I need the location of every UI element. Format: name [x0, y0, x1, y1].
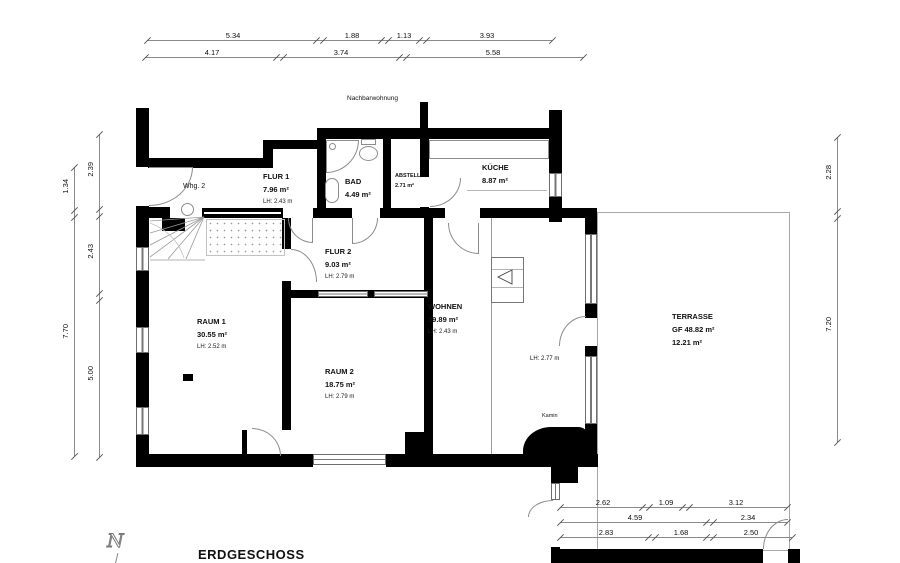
dim-label: 2.34	[741, 513, 756, 522]
dim-label: 1.09	[659, 498, 674, 507]
dim-label: 1.13	[397, 31, 412, 40]
wall	[585, 208, 597, 234]
door-arc-lower-left	[528, 500, 553, 517]
dim-label: 3.74	[334, 48, 349, 57]
toilet-bowl	[359, 146, 378, 161]
room-area: 7.96 m²	[263, 183, 292, 196]
wall	[480, 208, 597, 218]
dim-label: 1.34	[61, 179, 70, 194]
toilet-tank	[361, 139, 376, 145]
room-height-wohnen2: LH: 2.77 m	[530, 356, 559, 362]
room-name: BAD	[345, 175, 371, 188]
room-height: LH: 2.43 m	[428, 326, 462, 339]
wall	[551, 547, 560, 563]
wall	[585, 346, 597, 356]
room-label-raum2: RAUM 2 18.75 m² LH: 2.79 m	[325, 365, 355, 404]
door-arc-terrasse	[559, 316, 586, 346]
wall	[282, 281, 291, 430]
room-area: 12.21 m²	[672, 336, 715, 349]
room-height: LH: 2.52 m	[197, 341, 227, 354]
room-area: 18.75 m²	[325, 378, 355, 391]
window	[585, 234, 597, 304]
room-name: FLUR 2	[325, 245, 354, 258]
glazed-partition	[318, 291, 368, 297]
wall	[585, 304, 597, 318]
room-height: LH: 2.43 m	[263, 196, 292, 209]
room-label-wohnen: WOHNEN 39.89 m² LH: 2.43 m	[428, 300, 462, 339]
door-bell-symbol	[181, 203, 194, 216]
kitchen-counter	[429, 140, 549, 159]
room-area: 30.55 m²	[197, 328, 227, 341]
sink	[325, 178, 339, 203]
glazed-partition	[374, 291, 428, 297]
neighbor-label: Nachbarwohnung	[347, 95, 398, 102]
wall	[313, 208, 352, 218]
wall	[317, 128, 549, 139]
room-label-abstell: ABSTELL 2.71 m²	[395, 171, 420, 191]
room-area-gf: GF 48.82 m²	[672, 323, 715, 336]
compass-north-icon: N	[107, 530, 124, 552]
railing-slit	[204, 212, 281, 214]
door-arc-kueche	[430, 178, 461, 207]
dim-line-right	[837, 137, 838, 442]
dim-line-top-2	[145, 57, 583, 58]
door-arc-bad	[352, 218, 378, 244]
wall	[383, 139, 391, 217]
wall	[380, 208, 445, 218]
flue-arrow-icon	[491, 257, 524, 303]
room-area: 39.89 m²	[428, 313, 462, 326]
wall	[549, 110, 562, 173]
wall	[317, 139, 326, 217]
window	[136, 407, 149, 435]
room-height: LH: 2.79 m	[325, 391, 355, 404]
page-title: ERDGESCHOSS	[198, 547, 305, 562]
dim-label: 7.70	[61, 324, 70, 339]
wall	[788, 549, 800, 563]
dim-label: 5.34	[226, 31, 241, 40]
wall	[136, 454, 313, 467]
dim-label: 2.83	[599, 528, 614, 537]
room-name: FLUR 1	[263, 170, 292, 183]
wall	[551, 467, 578, 483]
column-mark	[183, 374, 193, 381]
room-label-flur1: FLUR 1 7.96 m² LH: 2.43 m	[263, 170, 292, 209]
room-area: 2.71 m²	[395, 181, 420, 191]
kamin-label: Kamin	[542, 413, 558, 419]
room-label-flur2: FLUR 2 9.03 m² LH: 2.79 m	[325, 245, 354, 284]
dim-line-bottom-2	[560, 522, 787, 523]
room-label-kueche: KÜCHE 8.87 m²	[482, 161, 509, 187]
window	[585, 356, 597, 424]
dim-label: 3.93	[480, 31, 495, 40]
wall	[263, 140, 322, 149]
dim-label: 1.88	[345, 31, 360, 40]
room-label-raum1: RAUM 1 30.55 m² LH: 2.52 m	[197, 315, 227, 354]
dim-label: 2.43	[86, 244, 95, 259]
dim-label: 2.62	[596, 498, 611, 507]
dim-label: 5.00	[86, 366, 95, 381]
dim-line-top-1	[147, 40, 552, 41]
window	[551, 483, 560, 500]
wall	[242, 430, 247, 454]
dim-label: 7.20	[824, 317, 833, 332]
wall	[420, 102, 428, 128]
room-label-bad: BAD 4.49 m²	[345, 175, 371, 201]
dim-label: 5.58	[486, 48, 501, 57]
room-label-whg2: Whg. 2	[183, 183, 205, 190]
door-arc-raum1-raum2	[252, 428, 281, 456]
fireplace-kamin	[523, 427, 588, 454]
room-area: 4.49 m²	[345, 188, 371, 201]
dim-label: 2.28	[824, 165, 833, 180]
dim-label: 4.59	[628, 513, 643, 522]
room-label-terrasse: TERRASSE GF 48.82 m² 12.21 m²	[672, 310, 715, 349]
dim-label: 2.39	[86, 162, 95, 177]
wall	[405, 432, 424, 454]
compass-needle	[115, 553, 119, 563]
dim-label: 2.50	[744, 528, 759, 537]
dim-label: 1.68	[674, 528, 689, 537]
room-name: WOHNEN	[428, 300, 462, 313]
wall	[420, 139, 429, 177]
room-name: KÜCHE	[482, 161, 509, 174]
room-name: RAUM 1	[197, 315, 227, 328]
room-name: RAUM 2	[325, 365, 355, 378]
void-dotted-area	[206, 219, 285, 256]
kitchen-counter-edge	[467, 190, 547, 191]
window	[549, 173, 562, 197]
dim-line-bottom-3	[560, 537, 792, 538]
wall	[386, 454, 598, 467]
staircase	[148, 213, 207, 261]
room-name: ABSTELL	[395, 171, 420, 181]
door-arc-flur1-flur2	[288, 218, 313, 243]
shower-drain	[329, 143, 336, 150]
dim-line-bottom-1	[560, 507, 787, 508]
wall	[136, 353, 149, 407]
room-area: 8.87 m²	[482, 174, 509, 187]
room-name: TERRASSE	[672, 310, 715, 323]
dim-line-left-inner	[99, 134, 100, 457]
room-height: LH: 2.79 m	[325, 271, 354, 284]
dim-label: 3.12	[729, 498, 744, 507]
floor-plan-canvas: 5.34 1.88 1.13 3.93 4.17 3.74 5.58 1.34 …	[0, 0, 900, 563]
window	[136, 327, 149, 353]
terrace-outline	[597, 212, 790, 551]
wall	[136, 271, 149, 327]
wall	[560, 549, 763, 563]
dim-label: 4.17	[205, 48, 220, 57]
door-arc-wohnen	[448, 223, 479, 254]
room-area: 9.03 m²	[325, 258, 354, 271]
door-arc-raum1-flur2	[291, 249, 317, 282]
window	[313, 454, 386, 465]
room-divider-line	[491, 218, 492, 454]
